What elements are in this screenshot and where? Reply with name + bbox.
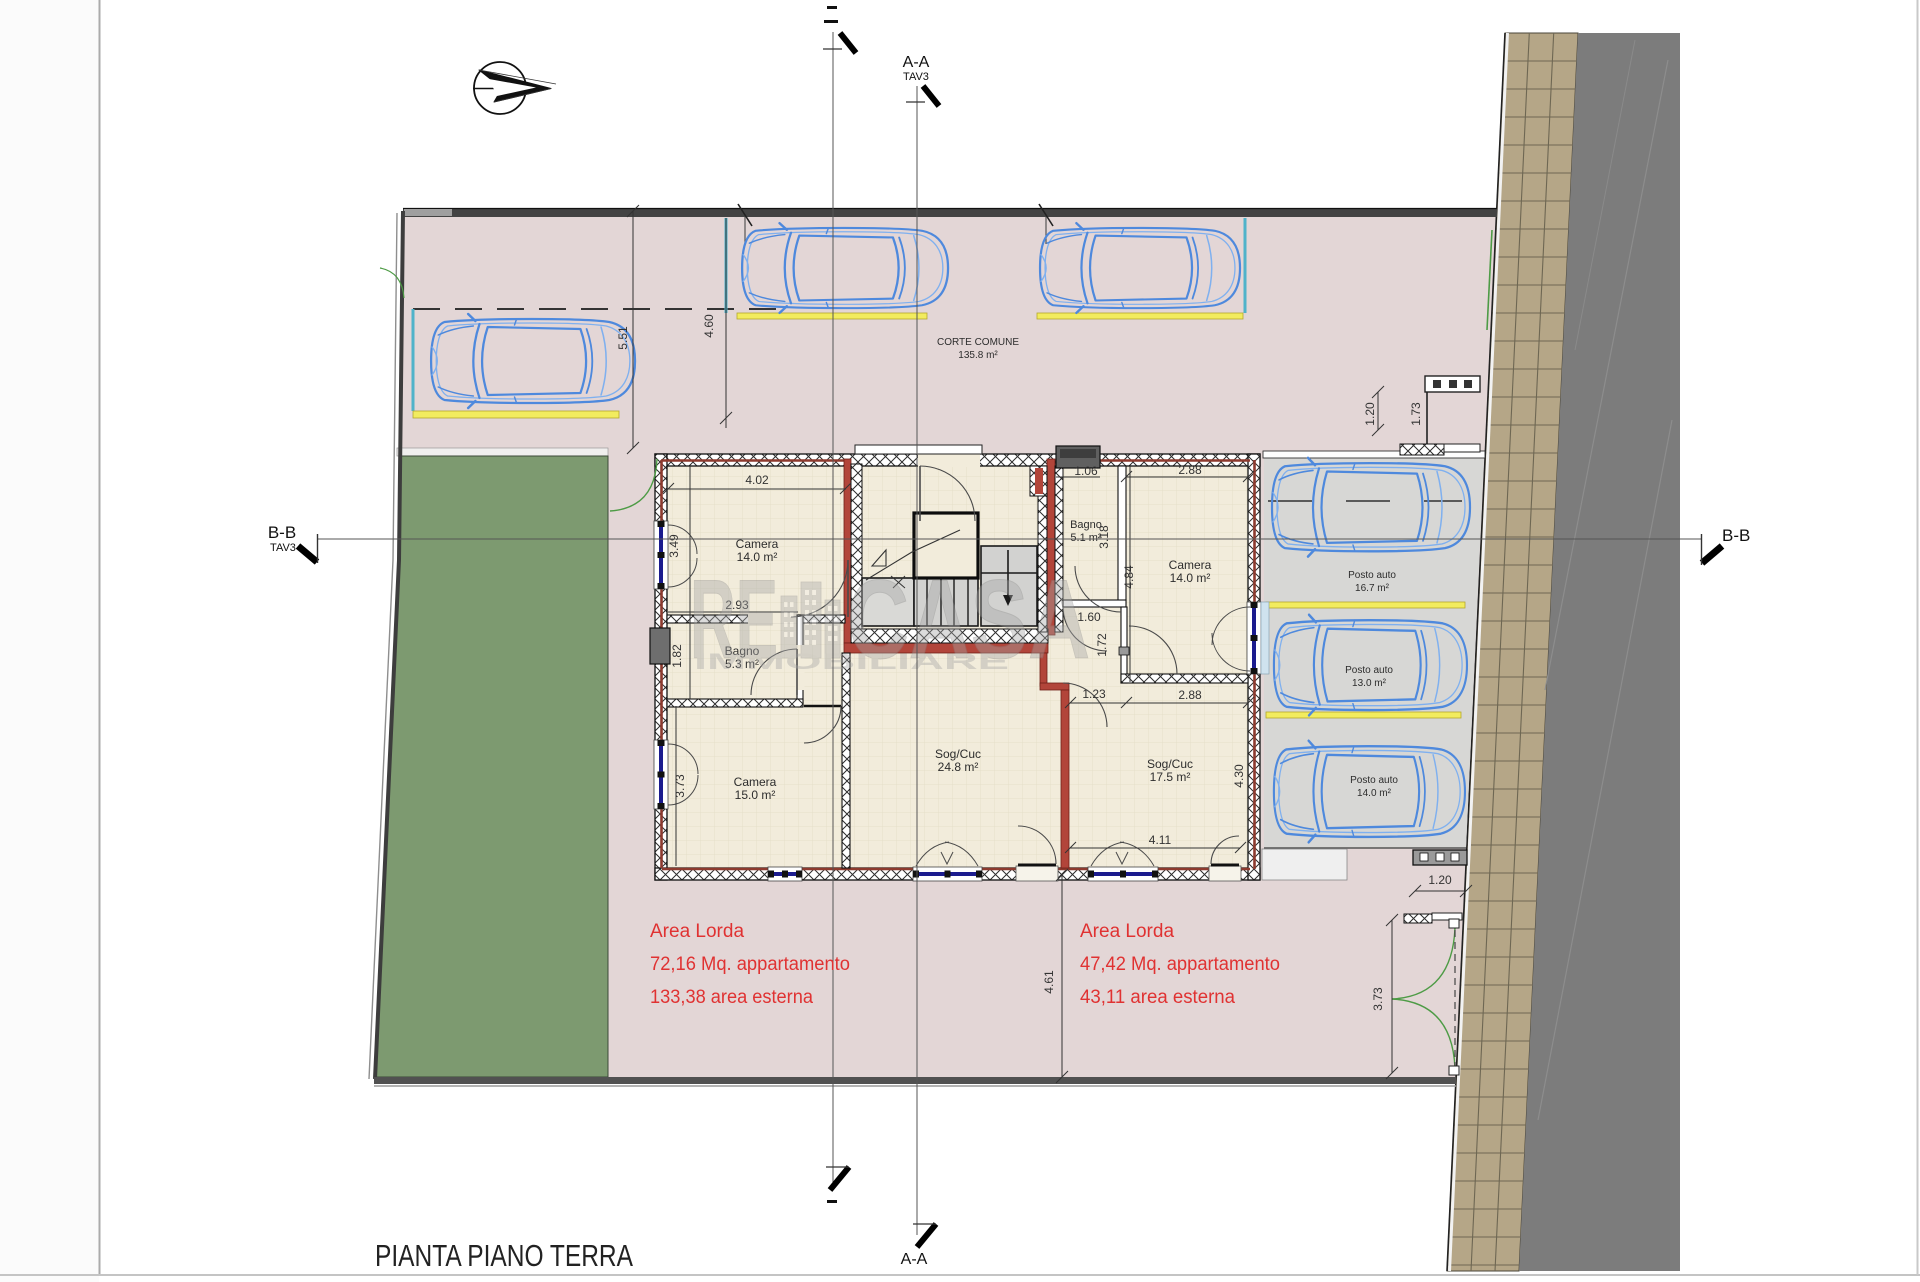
svg-text:IMMOBILIARE: IMMOBILIARE bbox=[694, 649, 1009, 674]
svg-text:A-A: A-A bbox=[903, 54, 930, 71]
svg-text:14.0 m²: 14.0 m² bbox=[1357, 788, 1392, 799]
svg-text:4.60: 4.60 bbox=[702, 314, 716, 338]
svg-text:1.73: 1.73 bbox=[1409, 402, 1423, 426]
svg-text:3.49: 3.49 bbox=[667, 534, 681, 558]
svg-text:4.84: 4.84 bbox=[1122, 565, 1136, 589]
svg-text:2.88: 2.88 bbox=[1178, 463, 1202, 477]
svg-text:5.51: 5.51 bbox=[616, 326, 630, 350]
svg-text:Area Lorda: Area Lorda bbox=[1080, 921, 1174, 942]
svg-text:Sog/Cuc: Sog/Cuc bbox=[1147, 757, 1193, 771]
svg-text:135.8 m²: 135.8 m² bbox=[958, 350, 998, 361]
svg-text:1.82: 1.82 bbox=[670, 644, 684, 668]
svg-text:1.20: 1.20 bbox=[1363, 402, 1377, 426]
svg-text:24.8 m²: 24.8 m² bbox=[938, 760, 979, 774]
svg-text:Posto auto: Posto auto bbox=[1348, 570, 1396, 581]
svg-text:43,11 area esterna: 43,11 area esterna bbox=[1080, 987, 1235, 1008]
svg-text:1.23: 1.23 bbox=[1082, 687, 1106, 701]
svg-text:1.06: 1.06 bbox=[1074, 464, 1098, 478]
svg-text:14.0 m²: 14.0 m² bbox=[1170, 571, 1211, 585]
svg-text:72,16 Mq. appartamento: 72,16 Mq. appartamento bbox=[650, 954, 850, 975]
svg-text:2.88: 2.88 bbox=[1178, 688, 1202, 702]
svg-text:17.5 m²: 17.5 m² bbox=[1150, 770, 1191, 784]
svg-text:4.02: 4.02 bbox=[745, 473, 769, 487]
svg-text:Posto auto: Posto auto bbox=[1350, 775, 1398, 786]
svg-text:3.73: 3.73 bbox=[1371, 987, 1385, 1011]
svg-text:Sog/Cuc: Sog/Cuc bbox=[935, 747, 981, 761]
svg-text:4.30: 4.30 bbox=[1232, 764, 1246, 788]
svg-text:B-B: B-B bbox=[1722, 526, 1750, 545]
svg-text:CORTE COMUNE: CORTE COMUNE bbox=[937, 337, 1019, 348]
svg-text:Posto auto: Posto auto bbox=[1345, 665, 1393, 676]
svg-text:15.0 m²: 15.0 m² bbox=[735, 788, 776, 802]
svg-text:4.61: 4.61 bbox=[1042, 970, 1056, 994]
svg-text:133,38 area esterna: 133,38 area esterna bbox=[650, 987, 813, 1008]
svg-text:Area Lorda: Area Lorda bbox=[650, 921, 744, 942]
svg-text:PIANTA PIANO TERRA: PIANTA PIANO TERRA bbox=[375, 1238, 633, 1273]
svg-text:47,42 Mq. appartamento: 47,42 Mq. appartamento bbox=[1080, 954, 1280, 975]
svg-text:1.72: 1.72 bbox=[1095, 633, 1109, 657]
svg-text:B-B: B-B bbox=[268, 523, 296, 542]
svg-text:3.73: 3.73 bbox=[673, 774, 687, 798]
svg-text:Camera: Camera bbox=[734, 775, 777, 789]
svg-text:4.11: 4.11 bbox=[1149, 833, 1172, 847]
svg-text:A-A: A-A bbox=[901, 1251, 928, 1268]
svg-text:TAV3: TAV3 bbox=[270, 542, 296, 554]
svg-text:16.7 m²: 16.7 m² bbox=[1355, 583, 1390, 594]
svg-text:3.18: 3.18 bbox=[1097, 525, 1111, 549]
svg-text:TAV3: TAV3 bbox=[903, 71, 929, 83]
svg-text:Camera: Camera bbox=[1169, 558, 1212, 572]
svg-text:13.0 m²: 13.0 m² bbox=[1352, 678, 1387, 689]
svg-text:1.20: 1.20 bbox=[1428, 873, 1452, 887]
